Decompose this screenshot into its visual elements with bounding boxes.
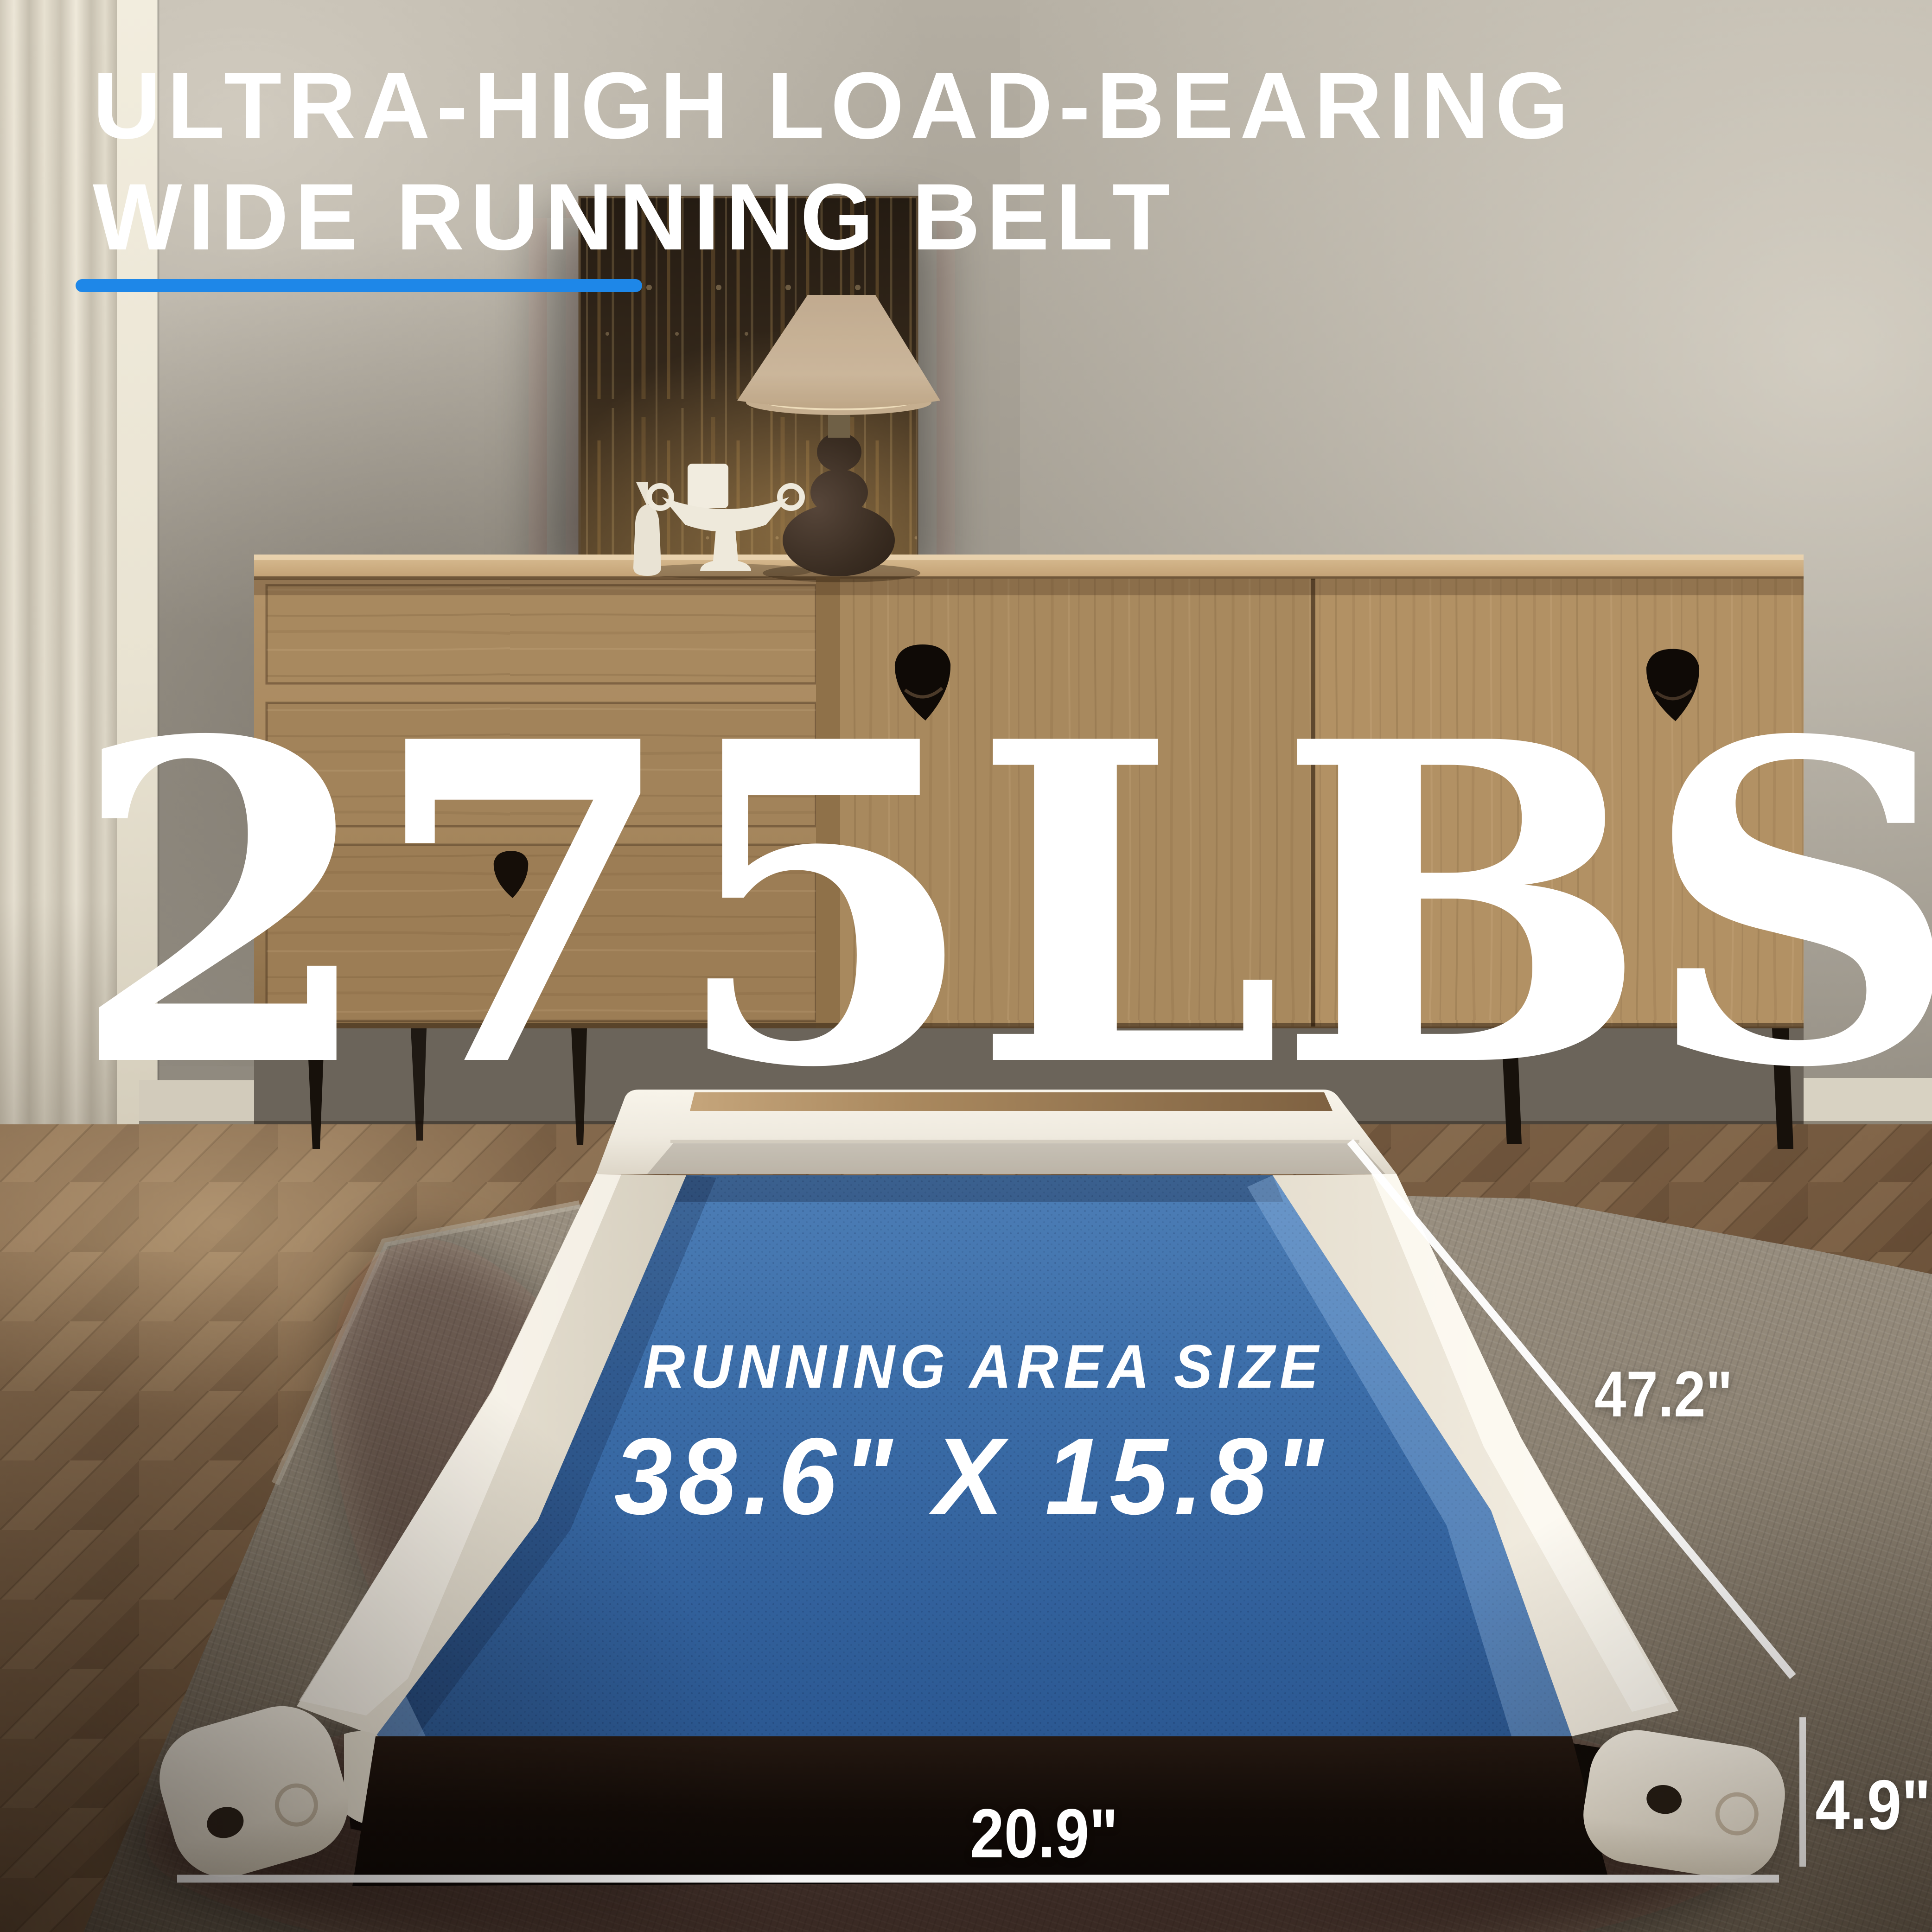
dimension-width-label: 20.9" <box>970 1793 1118 1874</box>
headline-line1: ULTRA-HIGH LOAD-BEARING <box>93 50 1575 161</box>
belt-area-text: 38.6" X 15.8" <box>614 1413 1330 1539</box>
candle <box>688 464 728 508</box>
belt-heading-text: RUNNING AREA SIZE <box>643 1332 1323 1402</box>
slab-highlight <box>254 555 1804 560</box>
headline-line2: WIDE RUNNING BELT <box>93 161 1575 273</box>
headline-underline <box>76 279 642 292</box>
headline: ULTRA-HIGH LOAD-BEARING WIDE RUNNING BEL… <box>93 50 1575 273</box>
weight-capacity-text: 275LBS <box>70 685 1932 1126</box>
dimension-height-label: 4.9" <box>1815 1765 1931 1846</box>
lamp-base-ball-mid <box>810 469 868 516</box>
dimension-length-label: 47.2" <box>1594 1357 1733 1432</box>
lamp-base-ball-small <box>817 433 861 472</box>
lamp-neck <box>828 414 850 438</box>
product-marketing-image: ULTRA-HIGH LOAD-BEARING WIDE RUNNING BEL… <box>0 0 1932 1932</box>
under-slab-shadow <box>254 577 1804 595</box>
